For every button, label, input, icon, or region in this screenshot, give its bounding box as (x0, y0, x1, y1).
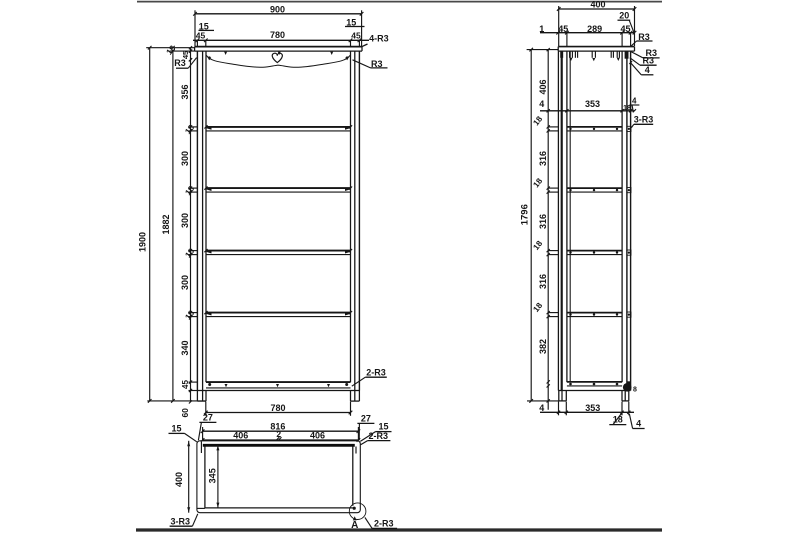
svg-text:27: 27 (203, 412, 213, 422)
svg-text:20: 20 (619, 11, 629, 21)
svg-text:406: 406 (310, 430, 325, 440)
svg-text:356: 356 (180, 84, 190, 99)
svg-text:300: 300 (180, 275, 190, 290)
svg-text:353: 353 (585, 99, 600, 109)
svg-text:353: 353 (585, 403, 600, 413)
svg-text:900: 900 (270, 4, 285, 14)
svg-text:406: 406 (233, 430, 248, 440)
svg-text:345: 345 (207, 468, 217, 483)
svg-text:18: 18 (532, 114, 545, 127)
svg-text:R3: R3 (643, 55, 655, 65)
svg-text:4: 4 (632, 96, 637, 105)
svg-text:18: 18 (165, 44, 178, 57)
svg-text:8: 8 (633, 386, 637, 393)
svg-text:400: 400 (174, 472, 184, 487)
svg-text:15: 15 (171, 423, 181, 433)
svg-text:18: 18 (532, 239, 545, 252)
svg-text:45: 45 (558, 24, 568, 34)
svg-text:45: 45 (620, 24, 630, 34)
svg-text:2-R3: 2-R3 (366, 367, 386, 377)
svg-text:316: 316 (538, 274, 548, 289)
svg-text:780: 780 (270, 30, 285, 40)
svg-text:300: 300 (180, 151, 190, 166)
svg-text:289: 289 (587, 24, 602, 34)
svg-text:1: 1 (539, 24, 544, 34)
svg-text:780: 780 (270, 403, 285, 413)
svg-text:3-R3: 3-R3 (634, 114, 654, 124)
svg-text:18: 18 (532, 301, 545, 314)
svg-text:2: 2 (276, 429, 281, 439)
svg-text:18: 18 (532, 176, 545, 189)
svg-text:2-R3: 2-R3 (374, 519, 394, 529)
svg-text:406: 406 (538, 79, 548, 94)
svg-text:27: 27 (361, 413, 371, 423)
svg-text:316: 316 (538, 214, 548, 229)
svg-text:18: 18 (183, 247, 196, 260)
svg-text:316: 316 (538, 151, 548, 166)
svg-text:300: 300 (180, 213, 190, 228)
svg-text:1900: 1900 (138, 232, 148, 252)
svg-text:45: 45 (181, 380, 190, 389)
svg-text:60: 60 (180, 408, 190, 418)
svg-text:4: 4 (636, 419, 641, 429)
svg-text:4: 4 (645, 65, 650, 75)
svg-text:18: 18 (183, 123, 196, 136)
svg-text:382: 382 (538, 339, 548, 354)
svg-text:45: 45 (351, 30, 361, 40)
svg-text:1882: 1882 (161, 214, 171, 234)
svg-text:3-R3: 3-R3 (171, 516, 191, 526)
svg-text:18: 18 (183, 184, 196, 197)
svg-text:18: 18 (183, 309, 196, 322)
svg-text:2-R3: 2-R3 (369, 431, 389, 441)
svg-text:R3: R3 (174, 58, 186, 68)
svg-text:4: 4 (539, 403, 544, 413)
svg-text:4: 4 (539, 99, 544, 109)
svg-text:A: A (351, 520, 358, 531)
svg-text:1796: 1796 (519, 204, 530, 225)
svg-text:340: 340 (180, 340, 190, 355)
svg-text:400: 400 (590, 0, 605, 10)
svg-text:45: 45 (196, 30, 206, 40)
svg-text:4-R3: 4-R3 (369, 34, 389, 44)
svg-text:18: 18 (623, 105, 631, 112)
